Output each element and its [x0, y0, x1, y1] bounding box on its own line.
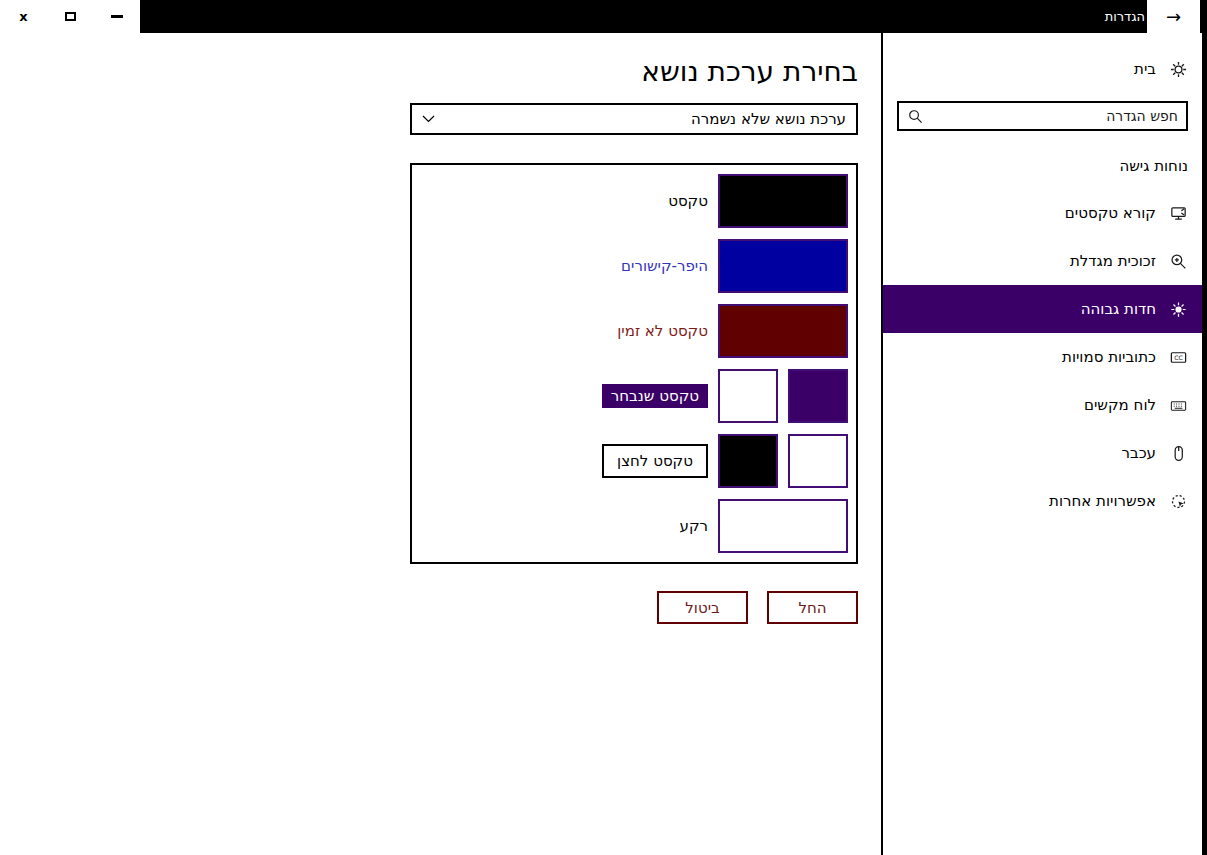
sidebar-item-label: אפשרויות אחרות	[1049, 492, 1156, 510]
search-input[interactable]	[899, 103, 1186, 129]
action-buttons: החל ביטול	[410, 591, 858, 624]
swatch-label-selected-text: טקסט שנבחר	[602, 384, 708, 408]
magnifier-icon	[1169, 252, 1188, 271]
chevron-down-icon	[422, 115, 435, 123]
swatch-row-background: רקע	[420, 499, 848, 553]
swatch-label-background: רקע	[680, 517, 709, 535]
swatch-label-hyperlinks: היפר-קישורים	[621, 257, 708, 275]
button-text-swatches	[718, 434, 848, 488]
swatch-row-selected-text: טקסט שנבחר	[420, 369, 848, 423]
svg-text:CC: CC	[1174, 354, 1183, 361]
mouse-icon	[1169, 444, 1188, 463]
selected-text-bg-swatch[interactable]	[788, 369, 848, 423]
hyperlink-color-swatch[interactable]	[718, 239, 848, 293]
main-content: בחירת ערכת נושא ערכת נושא שלא נשמרה טקסט…	[410, 33, 858, 624]
sidebar-item-label: זכוכית מגדלת	[1070, 252, 1156, 270]
back-arrow-icon: →	[1166, 6, 1181, 27]
maximize-icon	[65, 12, 76, 21]
keyboard-icon	[1169, 396, 1188, 415]
sidebar-nav: קורא טקסטים זכוכית מגדלת חדות גבוהה	[883, 189, 1202, 525]
sidebar-item-home[interactable]: בית	[897, 57, 1188, 81]
sidebar-item-high-contrast[interactable]: חדות גבוהה	[883, 285, 1202, 333]
back-button[interactable]: →	[1147, 0, 1200, 33]
narrator-icon	[1169, 204, 1188, 223]
theme-dropdown-value: ערכת נושא שלא נשמרה	[691, 110, 846, 128]
sidebar-item-label: כתוביות סמויות	[1062, 348, 1156, 366]
disabled-text-color-swatch[interactable]	[718, 304, 848, 358]
sidebar-item-magnifier[interactable]: זכוכית מגדלת	[883, 237, 1202, 285]
app-title: הגדרות	[1105, 0, 1145, 33]
maximize-button[interactable]	[47, 0, 94, 33]
apply-button[interactable]: החל	[767, 591, 858, 624]
high-contrast-sun-icon	[1169, 300, 1188, 319]
window-controls: x	[0, 0, 140, 33]
sidebar-home-label: בית	[1134, 60, 1156, 78]
sidebar-item-keyboard[interactable]: לוח מקשים	[883, 381, 1202, 429]
text-color-swatch[interactable]	[718, 174, 848, 228]
sidebar-section-label: נוחות גישה	[897, 157, 1188, 175]
swatch-row-button-text: טקסט לחצן	[420, 434, 848, 488]
page-title: בחירת ערכת נושא	[410, 55, 858, 88]
titlebar: x הגדרות →	[0, 0, 1207, 33]
sidebar: בית נוחות גישה קורא טקסטים	[883, 33, 1202, 855]
other-options-icon	[1169, 492, 1188, 511]
swatch-row-text: טקסט	[420, 174, 848, 228]
swatch-label-disabled-text: טקסט לא זמין	[617, 322, 708, 340]
background-color-swatch[interactable]	[718, 499, 848, 553]
sidebar-item-other-options[interactable]: אפשרויות אחרות	[883, 477, 1202, 525]
theme-dropdown[interactable]: ערכת נושא שלא נשמרה	[410, 103, 858, 135]
close-icon: x	[19, 10, 27, 23]
sidebar-item-closed-captions[interactable]: CC כתוביות סמויות	[883, 333, 1202, 381]
close-button[interactable]: x	[0, 0, 47, 33]
sidebar-item-narrator[interactable]: קורא טקסטים	[883, 189, 1202, 237]
sidebar-item-label: לוח מקשים	[1084, 396, 1156, 414]
closed-captions-icon: CC	[1169, 348, 1188, 367]
minimize-icon	[111, 15, 123, 18]
gear-icon	[1169, 60, 1188, 79]
swatch-label-button-text: טקסט לחצן	[602, 444, 708, 478]
minimize-button[interactable]	[93, 0, 140, 33]
sidebar-item-label: חדות גבוהה	[1081, 300, 1156, 318]
swatch-row-disabled-text: טקסט לא זמין	[420, 304, 848, 358]
button-text-fg-swatch[interactable]	[718, 434, 778, 488]
button-text-bg-swatch[interactable]	[788, 434, 848, 488]
swatch-row-hyperlinks: היפר-קישורים	[420, 239, 848, 293]
sidebar-item-mouse[interactable]: עכבר	[883, 429, 1202, 477]
selected-text-fg-swatch[interactable]	[718, 369, 778, 423]
cancel-button[interactable]: ביטול	[657, 591, 748, 624]
window-right-border	[1202, 33, 1207, 855]
swatch-label-text: טקסט	[668, 192, 708, 210]
sidebar-item-label: קורא טקסטים	[1065, 204, 1156, 222]
selected-text-swatches	[718, 369, 848, 423]
theme-preview-panel: טקסט היפר-קישורים טקסט לא זמין טקסט שנבח…	[410, 163, 858, 564]
sidebar-item-label: עכבר	[1122, 444, 1156, 462]
search-box	[897, 101, 1188, 131]
search-icon	[907, 108, 924, 125]
